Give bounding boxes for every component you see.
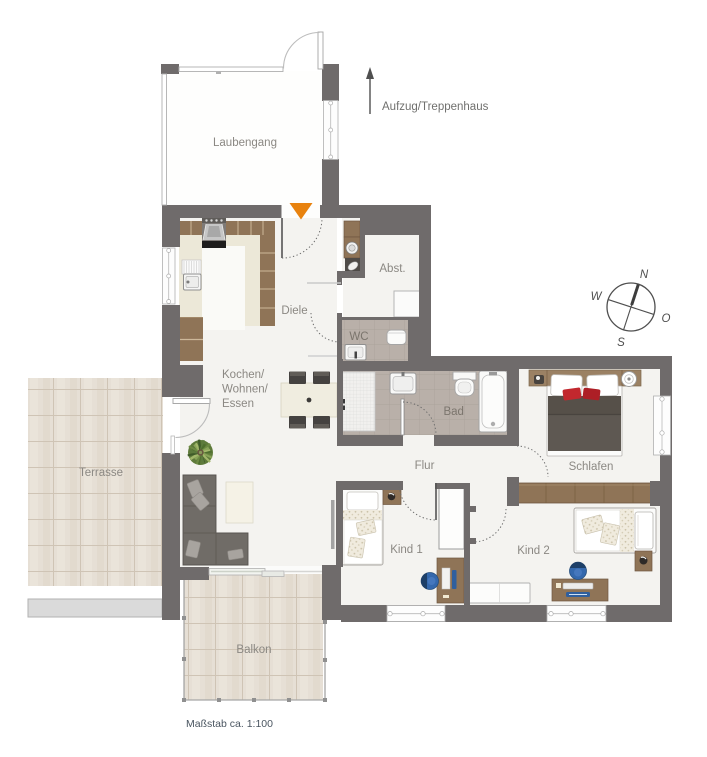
svg-text:Maßstab ca. 1:100: Maßstab ca. 1:100	[186, 718, 273, 730]
svg-text:Kind 1: Kind 1	[390, 544, 423, 556]
svg-text:Laubengang: Laubengang	[213, 137, 277, 149]
svg-text:Essen: Essen	[222, 398, 254, 410]
svg-text:W: W	[591, 291, 603, 303]
svg-text:S: S	[617, 337, 625, 349]
svg-text:Schlafen: Schlafen	[569, 461, 614, 473]
svg-text:N: N	[640, 269, 649, 281]
svg-text:O: O	[662, 313, 671, 325]
svg-text:WC: WC	[349, 331, 368, 343]
svg-text:Flur: Flur	[415, 460, 435, 472]
svg-text:Balkon: Balkon	[236, 644, 271, 656]
svg-text:Bad: Bad	[443, 406, 463, 418]
svg-text:Abst.: Abst.	[379, 263, 405, 275]
svg-text:Kind 2: Kind 2	[517, 545, 550, 557]
svg-text:Kochen/: Kochen/	[222, 369, 265, 381]
svg-text:Aufzug/Treppenhaus: Aufzug/Treppenhaus	[382, 101, 489, 113]
svg-text:Wohnen/: Wohnen/	[222, 384, 269, 396]
svg-text:Diele: Diele	[281, 305, 307, 317]
svg-text:Terrasse: Terrasse	[79, 467, 123, 479]
